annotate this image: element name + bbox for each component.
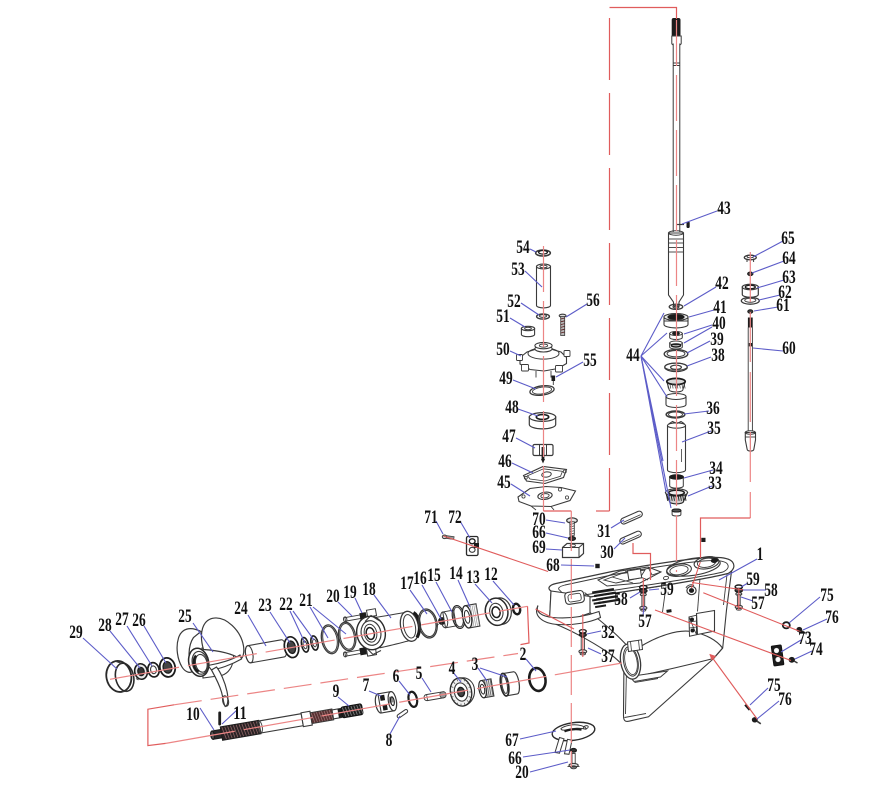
svg-text:76: 76 (825, 608, 838, 628)
svg-text:76: 76 (778, 690, 791, 710)
svg-text:42: 42 (715, 274, 728, 294)
svg-text:58: 58 (764, 581, 777, 601)
svg-text:19: 19 (343, 583, 356, 603)
svg-text:53: 53 (511, 260, 524, 280)
svg-text:57: 57 (751, 594, 764, 614)
svg-text:18: 18 (362, 580, 375, 600)
svg-text:20: 20 (515, 763, 528, 783)
svg-text:59: 59 (746, 570, 759, 590)
svg-text:46: 46 (498, 452, 511, 472)
svg-text:14: 14 (449, 564, 462, 584)
svg-text:43: 43 (717, 199, 730, 219)
svg-text:13: 13 (466, 568, 479, 588)
svg-text:69: 69 (532, 538, 545, 558)
svg-text:8: 8 (386, 731, 393, 751)
svg-text:45: 45 (497, 473, 510, 493)
svg-text:31: 31 (597, 522, 610, 542)
svg-text:26: 26 (132, 611, 145, 631)
svg-text:48: 48 (505, 398, 518, 418)
svg-text:38: 38 (711, 346, 724, 366)
svg-text:67: 67 (505, 731, 518, 751)
svg-text:56: 56 (586, 291, 599, 311)
svg-text:21: 21 (299, 591, 312, 611)
svg-text:11: 11 (233, 704, 246, 724)
svg-text:5: 5 (416, 664, 423, 684)
svg-text:68: 68 (546, 556, 559, 576)
svg-text:37: 37 (601, 647, 614, 667)
svg-text:58: 58 (614, 590, 627, 610)
svg-text:49: 49 (499, 369, 512, 389)
svg-text:50: 50 (496, 340, 509, 360)
svg-text:23: 23 (258, 596, 271, 616)
svg-text:15: 15 (427, 566, 440, 586)
svg-text:54: 54 (516, 238, 529, 258)
svg-text:29: 29 (69, 623, 82, 643)
svg-text:61: 61 (776, 296, 789, 316)
svg-text:2: 2 (520, 645, 527, 665)
svg-text:27: 27 (115, 610, 128, 630)
svg-text:36: 36 (706, 399, 719, 419)
svg-text:30: 30 (600, 543, 613, 563)
svg-text:24: 24 (234, 599, 247, 619)
svg-text:72: 72 (448, 508, 461, 528)
svg-text:51: 51 (496, 307, 509, 327)
svg-text:10: 10 (186, 705, 199, 725)
svg-text:59: 59 (660, 580, 673, 600)
svg-text:35: 35 (707, 419, 720, 439)
svg-text:64: 64 (782, 249, 795, 269)
svg-text:7: 7 (363, 676, 370, 696)
svg-text:60: 60 (782, 339, 795, 359)
svg-text:20: 20 (326, 587, 339, 607)
svg-text:22: 22 (279, 595, 292, 615)
svg-text:33: 33 (708, 474, 721, 494)
svg-text:55: 55 (583, 351, 596, 371)
svg-text:6: 6 (393, 667, 400, 687)
svg-text:17: 17 (400, 574, 413, 594)
svg-text:75: 75 (820, 586, 833, 606)
svg-text:44: 44 (626, 346, 639, 366)
svg-text:65: 65 (781, 229, 794, 249)
svg-text:47: 47 (502, 427, 515, 447)
svg-text:57: 57 (638, 612, 651, 632)
svg-text:71: 71 (424, 508, 437, 528)
svg-text:1: 1 (757, 545, 764, 565)
svg-text:3: 3 (472, 655, 479, 675)
svg-text:16: 16 (413, 569, 426, 589)
svg-text:4: 4 (449, 659, 456, 679)
svg-text:28: 28 (98, 616, 111, 636)
svg-text:32: 32 (601, 623, 614, 643)
svg-text:74: 74 (809, 640, 822, 660)
svg-text:12: 12 (484, 565, 497, 585)
svg-text:9: 9 (333, 682, 340, 702)
svg-text:25: 25 (178, 607, 191, 627)
